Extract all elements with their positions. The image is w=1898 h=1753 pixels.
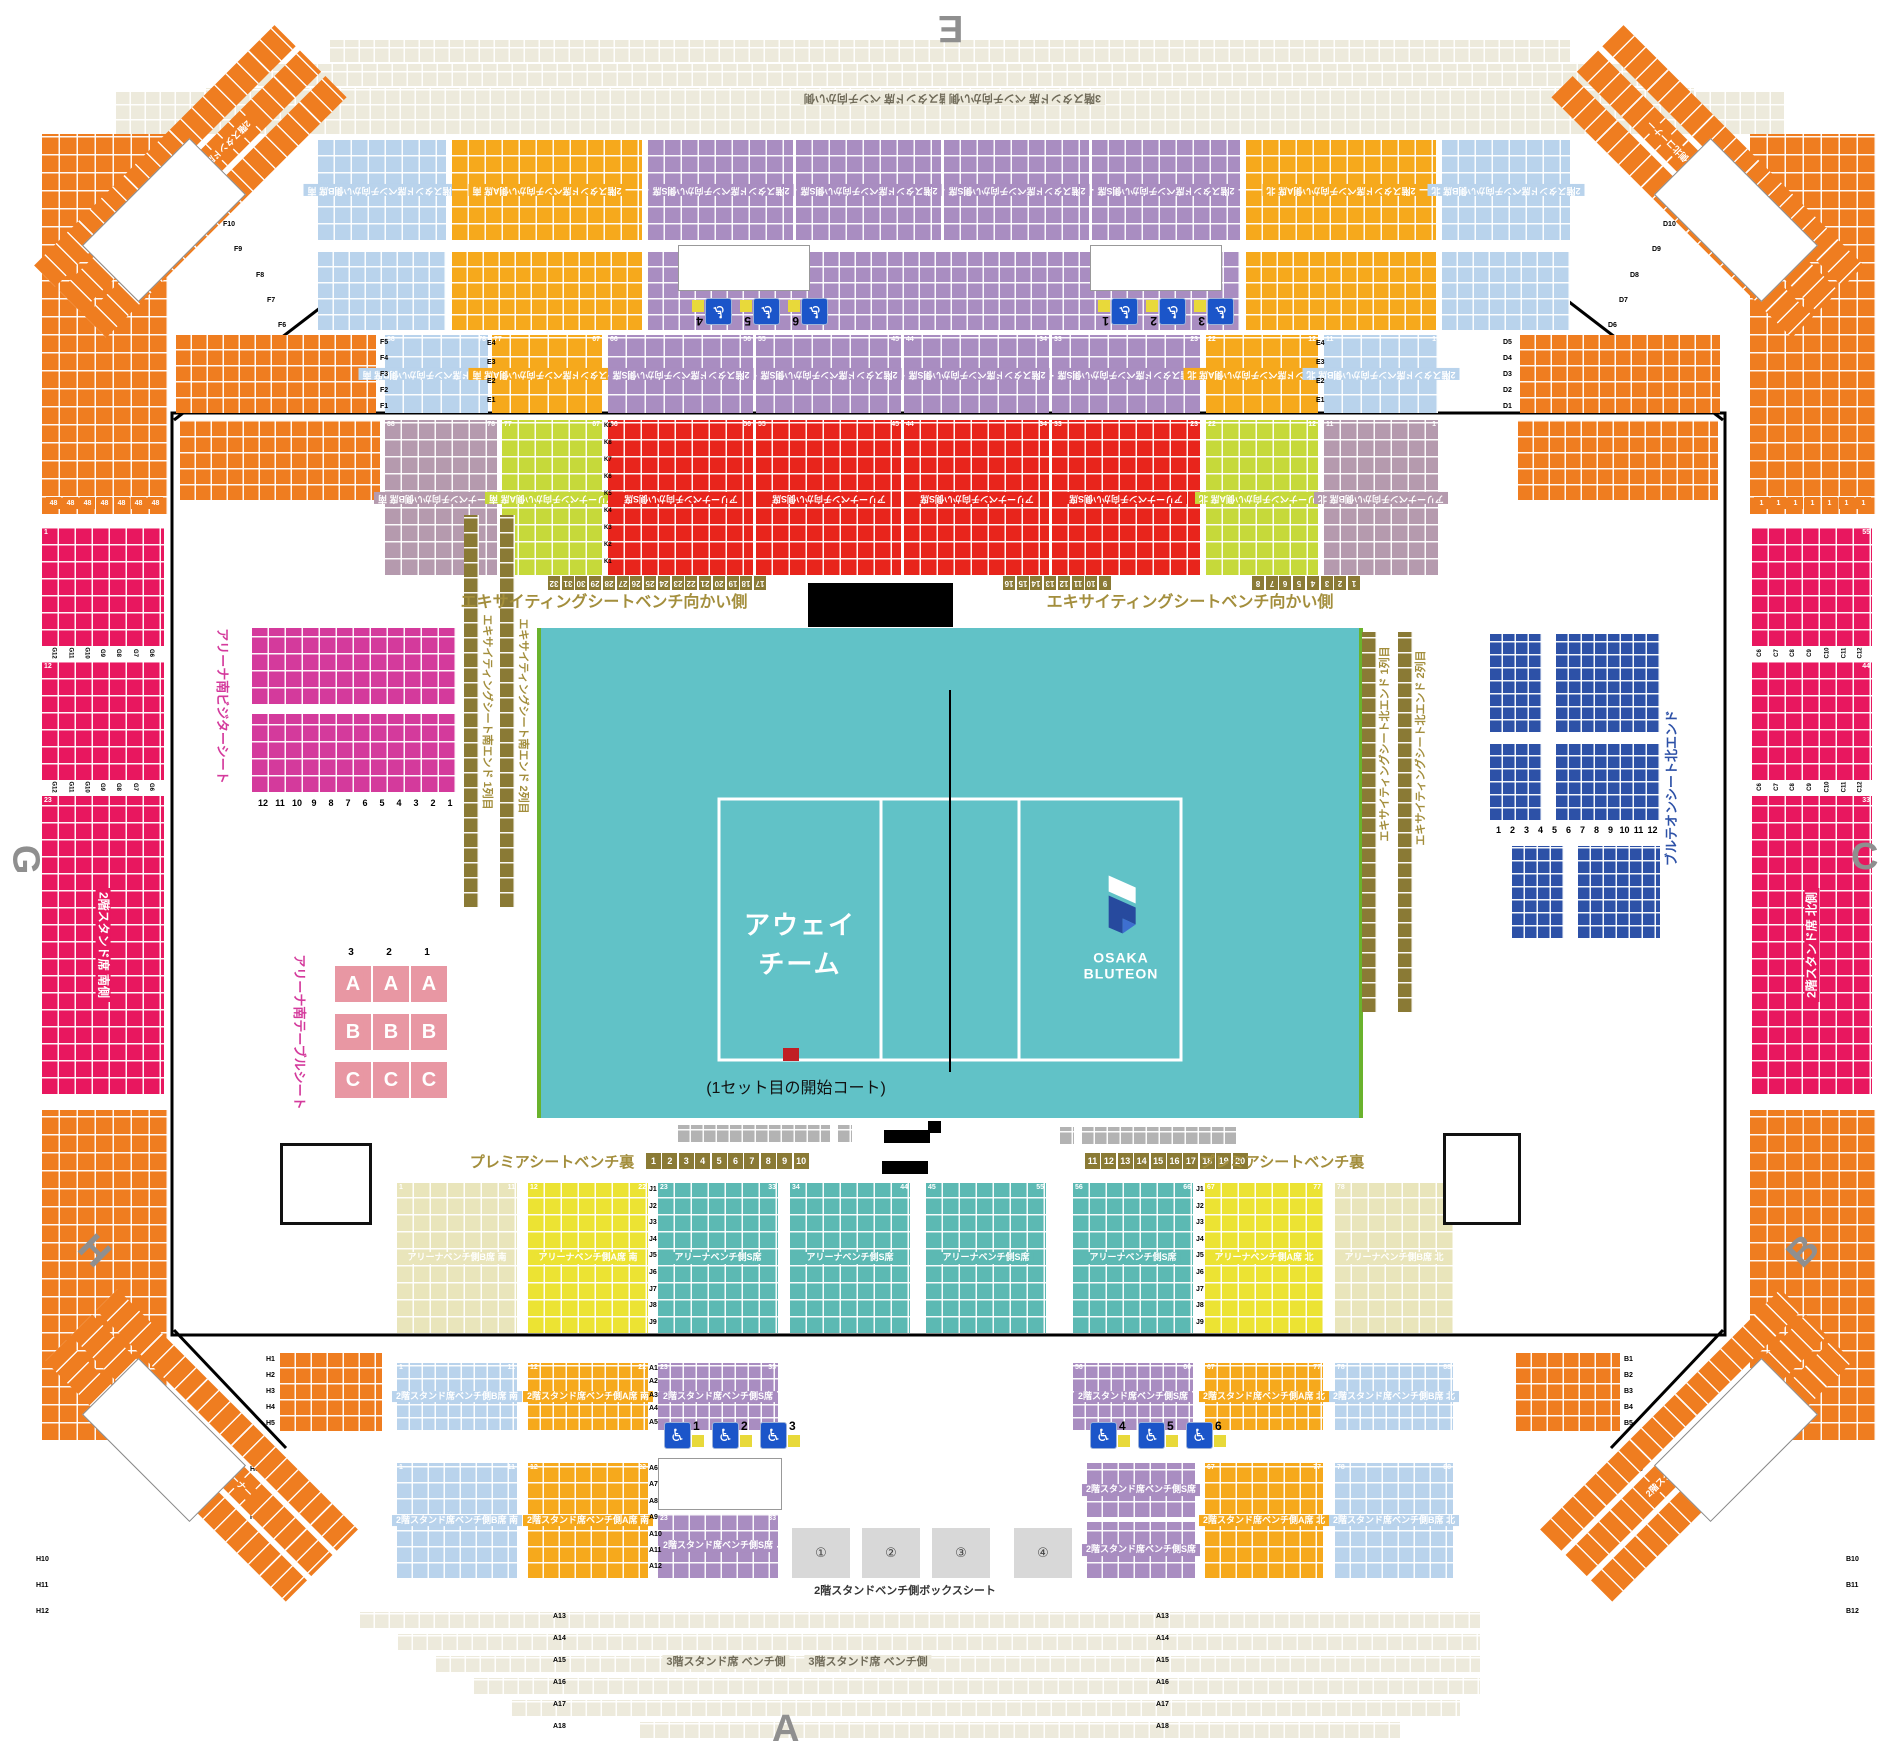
row-label-A13: A13 xyxy=(1156,1613,1169,1620)
wheelchair-seat-1[interactable]: ♿1 xyxy=(664,1422,706,1449)
row-label-G8: G8 xyxy=(115,649,121,657)
bluteon-row-11[interactable]: 11 xyxy=(1632,824,1645,836)
companion-seat[interactable] xyxy=(692,1435,704,1447)
bluteon-row-4[interactable]: 4 xyxy=(1534,824,1547,836)
visitor-row-9[interactable]: 9 xyxy=(307,797,321,809)
section-label-2f-bench-s-upper-right: 2階スタンド席ベンチ側S席 xyxy=(1074,1391,1192,1403)
section-label-arena-bench-s-2: アリーナベンチ側S席 xyxy=(802,1252,897,1264)
row-label-C11: C11 xyxy=(1841,782,1847,793)
section-2f-bench-a-south-lower[interactable]: 2階スタンド席ベンチ側A席 南1222 xyxy=(528,1463,648,1578)
exciting-facing-17[interactable]: 17 xyxy=(754,576,766,590)
section-2f-facing-a-south-lower[interactable]: 2階スタンド席ベンチ向かい側A席 南7767 xyxy=(492,335,602,413)
section-2f-south-side-3[interactable]: 2階スタンド席 南側23 xyxy=(42,796,164,1094)
section-label-2f-facing-s-lower-2: 2階スタンド席ベンチ向かい側S席 xyxy=(756,368,901,380)
seat-number-44: 44 xyxy=(900,1184,908,1191)
label-プレミアシートベンチ: プレミアシートベンチ裏 xyxy=(470,1155,634,1172)
section-arena-bench-a-north[interactable]: アリーナベンチ側A席 北6777 xyxy=(1205,1183,1323,1333)
label-3階スタンド席 ベン: 3階スタンド席 ベンチ側 xyxy=(662,1655,789,1669)
section-arena-facing-a-south[interactable]: アリーナベンチ向かい側A席 南7767 xyxy=(502,420,602,575)
wheelchair-icon: ♿ xyxy=(705,298,732,325)
section-2f-north-side-2[interactable]: 44 xyxy=(1752,662,1872,780)
wheelchair-seat-3[interactable]: ♿3 xyxy=(1192,298,1234,325)
visitor-row-3[interactable]: 3 xyxy=(409,797,423,809)
section-bluteon-north-4[interactable] xyxy=(1556,744,1660,820)
row-label-D6: D6 xyxy=(1608,322,1617,329)
exciting-facing-8[interactable]: 8 xyxy=(1252,576,1264,590)
exciting-facing-3[interactable]: 3 xyxy=(1321,576,1333,590)
table-col-2[interactable]: 2 xyxy=(382,947,396,959)
section-bluteon-north-3[interactable] xyxy=(1490,744,1542,820)
section-table-seat-b3[interactable]: B xyxy=(335,1014,371,1050)
side-south-seat-48[interactable]: 48 xyxy=(148,497,163,509)
exciting-facing-13[interactable]: 13 xyxy=(1044,576,1056,590)
section-3f-south-row6[interactable] xyxy=(640,1722,1400,1738)
row-label-J9: J9 xyxy=(1196,1319,1204,1326)
row-label-K8: K8 xyxy=(604,440,612,446)
row-label-B4: B4 xyxy=(1624,1404,1633,1411)
premium-15[interactable]: 15 xyxy=(1151,1153,1166,1169)
section-bluteon-north-1[interactable] xyxy=(1490,634,1542,732)
row-label-B10: B10 xyxy=(1846,1556,1859,1563)
label-エキサイティングシー: エキサイティングシートベンチ向かい側 xyxy=(461,594,748,612)
exciting-facing-25[interactable]: 25 xyxy=(644,576,656,590)
table-col-3[interactable]: 3 xyxy=(344,947,358,959)
section-3f-north-row2[interactable] xyxy=(258,64,1642,86)
companion-seat[interactable] xyxy=(1146,300,1158,312)
section-bench-row-right[interactable] xyxy=(1082,1127,1236,1144)
side-north-seat-1[interactable]: 1 xyxy=(1822,497,1837,509)
exciting-facing-20[interactable]: 20 xyxy=(713,576,725,590)
row-label-K4: K4 xyxy=(604,508,612,514)
row-label-E4: E4 xyxy=(487,340,496,347)
section-arena-bench-s-2[interactable]: アリーナベンチ側S席3444 xyxy=(790,1183,910,1333)
side-north-seat-1[interactable]: 1 xyxy=(1839,497,1854,509)
seat-number-34: 34 xyxy=(1039,421,1047,428)
seat-number-1: 1 xyxy=(399,1364,403,1371)
section-corner-h-inner-steps[interactable] xyxy=(280,1353,382,1431)
visitor-row-7[interactable]: 7 xyxy=(341,797,355,809)
side-south-seat-48[interactable]: 48 xyxy=(131,497,146,509)
premium-13[interactable]: 13 xyxy=(1118,1153,1133,1169)
row-label-B5: B5 xyxy=(1624,1420,1633,1427)
section-2f-bench-a-north-upper[interactable]: 2階スタンド席ベンチ側A席 北6777 xyxy=(1205,1363,1323,1430)
section-arena-facing-b-south[interactable]: アリーナベンチ向かい側B席 南8878 xyxy=(385,420,497,575)
section-2f-bench-s-upper-left[interactable]: 2階スタンド席ベンチ側S席2333 xyxy=(658,1363,778,1430)
seat-number-88: 88 xyxy=(1443,1364,1451,1371)
side-north-seat-1[interactable]: 1 xyxy=(1771,497,1786,509)
section-label-2f-facing-a-south-upper: 2階スタンド席ベンチ向かい側A席 南 xyxy=(468,184,625,196)
premium-1[interactable]: 1 xyxy=(646,1153,661,1169)
section-arena-bench-b-south[interactable]: アリーナベンチ側B席 南111 xyxy=(397,1183,517,1333)
bluteon-row-9[interactable]: 9 xyxy=(1604,824,1617,836)
set-start-marker xyxy=(783,1048,799,1061)
section-table-seat-a2[interactable]: A xyxy=(373,966,409,1002)
exciting-facing-22[interactable]: 22 xyxy=(685,576,697,590)
section-bluteon-north-2[interactable] xyxy=(1556,634,1660,732)
section-table-seat-b2[interactable]: B xyxy=(373,1014,409,1050)
label-プレミアシートベンチ: プレミアシートベンチ裏 xyxy=(1200,1155,1364,1172)
side-north-seat-1[interactable]: 1 xyxy=(1856,497,1871,509)
exciting-facing-19[interactable]: 19 xyxy=(727,576,739,590)
visitor-row-5[interactable]: 5 xyxy=(375,797,389,809)
exciting-facing-15[interactable]: 15 xyxy=(1017,576,1029,590)
bluteon-row-1[interactable]: 1 xyxy=(1492,824,1505,836)
section-exciting-south-row1[interactable] xyxy=(464,515,479,907)
row-label-G9: G9 xyxy=(99,783,105,791)
section-arena-facing-s-3[interactable]: アリーナベンチ向かい側S席4434 xyxy=(904,420,1049,575)
section-table-seat-a1[interactable]: A xyxy=(411,966,447,1002)
premium-8[interactable]: 8 xyxy=(761,1153,776,1169)
gate-letter-G: G xyxy=(3,845,46,875)
wheelchair-seat-4[interactable]: ♿4 xyxy=(1090,1422,1132,1449)
section-arena-bench-s-4[interactable]: アリーナベンチ側S席5666 xyxy=(1073,1183,1193,1333)
section-corner-d-inner-rows[interactable] xyxy=(1520,335,1720,413)
exciting-facing-2[interactable]: 2 xyxy=(1334,576,1346,590)
companion-seat[interactable] xyxy=(1118,1435,1130,1447)
side-south-seat-48[interactable]: 48 xyxy=(97,497,112,509)
section-2f-bench-b-north-lower[interactable]: 2階スタンド席ベンチ側B席 北7888 xyxy=(1335,1463,1453,1578)
companion-seat[interactable] xyxy=(1098,300,1110,312)
section-3f-south-row4[interactable] xyxy=(474,1678,1480,1694)
exciting-facing-4[interactable]: 4 xyxy=(1307,576,1319,590)
section-2f-facing-a-north-lower[interactable]: 2階スタンド席ベンチ向かい側A席 北2212 xyxy=(1206,335,1318,413)
section-2f-south-side-2[interactable]: 12 xyxy=(42,662,164,780)
section-arena-south-visitor-1[interactable] xyxy=(252,628,456,704)
section-label-arena-facing-a-north: アリーナベンチ向かい側A席 北 xyxy=(1195,492,1329,504)
section-corner-g-inner-steps[interactable] xyxy=(180,420,380,500)
premium-6[interactable]: 6 xyxy=(728,1153,743,1169)
seat-number-34: 34 xyxy=(792,1184,800,1191)
wheelchair-seat-2[interactable]: ♿2 xyxy=(1144,298,1186,325)
section-arena-bench-b-north[interactable]: アリーナベンチ側B席 北7888 xyxy=(1335,1183,1453,1333)
team-logo: OSAKA BLUTEON xyxy=(1084,875,1159,982)
box-seat-①[interactable]: ① xyxy=(792,1528,850,1578)
section-2f-bench-b-south-upper[interactable]: 2階スタンド席ベンチ側B席 南111 xyxy=(397,1363,517,1430)
section-2f-bench-a-south-upper[interactable]: 2階スタンド席ベンチ側A席 南1222 xyxy=(528,1363,648,1430)
exciting-facing-27[interactable]: 27 xyxy=(617,576,629,590)
premium-4[interactable]: 4 xyxy=(695,1153,710,1169)
section-2f-facing-s-upper-4[interactable]: 2階スタンド席ベンチ向かい側S席 xyxy=(1092,140,1240,240)
bluteon-row-6[interactable]: 6 xyxy=(1562,824,1575,836)
visitor-row-6[interactable]: 6 xyxy=(358,797,372,809)
section-2f-facing-s-upper-3[interactable]: 2階スタンド席ベンチ向かい側S席 xyxy=(944,140,1089,240)
bluteon-row-7[interactable]: 7 xyxy=(1576,824,1589,836)
row-label-A14: A14 xyxy=(1156,1635,1169,1642)
seat-number-33: 33 xyxy=(1054,421,1062,428)
section-exciting-north-row1[interactable] xyxy=(1362,632,1377,1012)
visitor-row-12[interactable]: 12 xyxy=(256,797,270,809)
visitor-row-8[interactable]: 8 xyxy=(324,797,338,809)
premium-2[interactable]: 2 xyxy=(662,1153,677,1169)
wheelchair-seat-5[interactable]: ♿5 xyxy=(738,298,780,325)
wheelchair-seat-number: 6 xyxy=(1215,1419,1222,1433)
section-bluteon-north-5[interactable] xyxy=(1512,846,1564,938)
section-arena-facing-s-2[interactable]: アリーナベンチ向かい側S席5545 xyxy=(756,420,901,575)
section-bench-row-left[interactable] xyxy=(678,1125,830,1142)
section-label-2f-bench-s-lower-right-b: 2階スタンド席ベンチ側S席 xyxy=(1082,1544,1200,1556)
wheelchair-seat-group[interactable]: ♿3♿2♿1 xyxy=(1096,298,1234,325)
row-label-E4: E4 xyxy=(1316,340,1325,347)
premium-7[interactable]: 7 xyxy=(744,1153,759,1169)
visitor-row-2[interactable]: 2 xyxy=(426,797,440,809)
wheelchair-seat-number: 3 xyxy=(1198,314,1205,328)
section-label-2f-facing-s-lower-3: 2階スタンド席ベンチ向かい側S席 xyxy=(904,368,1049,380)
premium-9[interactable]: 9 xyxy=(777,1153,792,1169)
premium-16[interactable]: 16 xyxy=(1167,1153,1182,1169)
wheelchair-seat-5[interactable]: ♿5 xyxy=(1138,1422,1180,1449)
wheelchair-icon: ♿ xyxy=(1090,1422,1117,1449)
wheelchair-seat-6[interactable]: ♿6 xyxy=(786,298,828,325)
side-north-seat-1[interactable]: 1 xyxy=(1788,497,1803,509)
visitor-row-1[interactable]: 1 xyxy=(443,797,457,809)
premium-11[interactable]: 11 xyxy=(1085,1153,1100,1169)
section-2f-facing-b-north-lower[interactable]: 2階スタンド席ベンチ向かい側B席 北111 xyxy=(1324,335,1438,413)
exciting-facing-23[interactable]: 23 xyxy=(672,576,684,590)
row-label-A10: A10 xyxy=(649,1531,662,1538)
section-2f-south-side-1[interactable]: 1 xyxy=(42,528,164,646)
section-2f-north-side-1[interactable]: 55 xyxy=(1752,528,1872,646)
section-2f-facing-a-north-mid[interactable] xyxy=(1246,252,1436,330)
section-corner-b-inner-steps[interactable] xyxy=(1516,1353,1620,1431)
section-2f-facing-a-north-upper[interactable]: 2階スタンド席ベンチ向かい側A席 北 xyxy=(1246,140,1436,240)
wheelchair-seat-group[interactable]: ♿1♿2♿3 xyxy=(664,1422,802,1449)
seat-number-1: 1 xyxy=(1432,421,1436,428)
section-table-seat-b1[interactable]: B xyxy=(411,1014,447,1050)
box-seat-②[interactable]: ② xyxy=(862,1528,920,1578)
seat-number-78: 78 xyxy=(478,336,486,343)
section-3f-south-row5[interactable] xyxy=(512,1700,1460,1716)
seat-number-33: 33 xyxy=(1862,797,1870,804)
exciting-facing-5[interactable]: 5 xyxy=(1293,576,1305,590)
seat-number-45: 45 xyxy=(928,1184,936,1191)
section-2f-facing-b-north-mid[interactable] xyxy=(1442,252,1570,330)
row-label-B2: B2 xyxy=(1624,1372,1633,1379)
row-label-C8: C8 xyxy=(1790,783,1796,791)
away-team-label: アウェイ チーム xyxy=(744,906,856,984)
section-arena-facing-a-north[interactable]: アリーナベンチ向かい側A席 北2212 xyxy=(1206,420,1318,575)
exciting-facing-18[interactable]: 18 xyxy=(740,576,752,590)
section-3f-south-row3[interactable] xyxy=(436,1656,1480,1672)
section-label-arena-facing-a-south: アリーナベンチ向かい側A席 南 xyxy=(485,492,619,504)
section-table-seat-c2[interactable]: C xyxy=(373,1062,409,1098)
wheelchair-seat-number: 6 xyxy=(792,314,799,328)
wheelchair-icon: ♿ xyxy=(1111,298,1138,325)
section-arena-bench-a-south[interactable]: アリーナベンチ側A席 南1222 xyxy=(528,1183,648,1333)
row-label-C6: C6 xyxy=(1757,783,1763,791)
side-south-seat-48[interactable]: 48 xyxy=(80,497,95,509)
section-table-seat-a3[interactable]: A xyxy=(335,966,371,1002)
section-2f-facing-b-south-upper[interactable]: 2階スタンド席ベンチ向かい側B席 南 xyxy=(318,140,446,240)
section-2f-bench-b-north-upper[interactable]: 2階スタンド席ベンチ側B席 北7888 xyxy=(1335,1363,1453,1430)
exciting-facing-9[interactable]: 9 xyxy=(1099,576,1111,590)
box-seat-④[interactable]: ④ xyxy=(1014,1528,1072,1578)
section-arena-facing-s-4[interactable]: アリーナベンチ向かい側S席3323 xyxy=(1052,420,1200,575)
wheelchair-seat-3[interactable]: ♿3 xyxy=(760,1422,802,1449)
companion-seat[interactable] xyxy=(1194,300,1206,312)
row-label-A11: A11 xyxy=(649,1547,661,1554)
team-logo-text2: BLUTEON xyxy=(1084,966,1159,982)
seat-number-22: 22 xyxy=(1208,336,1216,343)
exciting-facing-24[interactable]: 24 xyxy=(658,576,670,590)
wheelchair-seat-group[interactable]: ♿6♿5♿4 xyxy=(690,298,828,325)
section-corner-d-inner-steps[interactable] xyxy=(1518,420,1718,500)
bluteon-row-2[interactable]: 2 xyxy=(1506,824,1519,836)
exciting-facing-21[interactable]: 21 xyxy=(699,576,711,590)
wheelchair-seat-number: 4 xyxy=(696,314,703,328)
side-north-seat-1[interactable]: 1 xyxy=(1805,497,1820,509)
row-label-K1: K1 xyxy=(604,559,612,565)
exciting-facing-1[interactable]: 1 xyxy=(1348,576,1360,590)
seat-number-45: 45 xyxy=(891,421,899,428)
companion-seat[interactable] xyxy=(1166,1435,1178,1447)
side-south-seat-48[interactable]: 48 xyxy=(114,497,129,509)
wheelchair-seat-group[interactable]: ♿4♿5♿6 xyxy=(1090,1422,1228,1449)
section-label-2f-facing-s-lower-1: 2階スタンド席ベンチ向かい側S席 xyxy=(608,368,753,380)
section-label-table-seat-a1: A xyxy=(418,972,440,996)
seat-number-77: 77 xyxy=(1313,1184,1321,1191)
section-exciting-south-row2[interactable] xyxy=(500,515,515,907)
section-arena-south-visitor-2[interactable] xyxy=(252,714,456,792)
box-seats-top-right xyxy=(1090,245,1222,291)
section-arena-facing-b-north[interactable]: アリーナベンチ向かい側B席 北111 xyxy=(1324,420,1438,575)
section-2f-bench-a-north-lower[interactable]: 2階スタンド席ベンチ側A席 北6777 xyxy=(1205,1463,1323,1578)
box-seat-③[interactable]: ③ xyxy=(932,1528,990,1578)
section-2f-bench-s-lower-left[interactable]: 2階スタンド席ベンチ側S席2333 xyxy=(658,1514,778,1578)
row-label-J7: J7 xyxy=(649,1286,657,1293)
section-2f-bench-b-south-lower[interactable]: 2階スタンド席ベンチ側B席 南111 xyxy=(397,1463,517,1578)
side-south-seat-48[interactable]: 48 xyxy=(63,497,78,509)
row-label-G12: G12 xyxy=(51,781,57,792)
exciting-facing-14[interactable]: 14 xyxy=(1030,576,1042,590)
bluteon-row-3[interactable]: 3 xyxy=(1520,824,1533,836)
section-3f-south-row1[interactable] xyxy=(360,1612,1480,1628)
section-2f-facing-s-lower-3[interactable]: 2階スタンド席ベンチ向かい側S席4434 xyxy=(904,335,1049,413)
exciting-facing-29[interactable]: 29 xyxy=(589,576,601,590)
premium-10[interactable]: 10 xyxy=(794,1153,809,1169)
exciting-facing-26[interactable]: 26 xyxy=(630,576,642,590)
section-2f-facing-b-south-mid[interactable] xyxy=(318,252,446,330)
label-ブルテオンシート北エ: ブルテオンシート北エンド xyxy=(1665,710,1679,866)
wheelchair-seat-6[interactable]: ♿6 xyxy=(1186,1422,1228,1449)
bluteon-row-10[interactable]: 10 xyxy=(1618,824,1631,836)
section-2f-facing-s-lower-1[interactable]: 2階スタンド席ベンチ向かい側S席6656 xyxy=(608,335,753,413)
wheelchair-seat-number: 2 xyxy=(1150,314,1157,328)
section-2f-facing-b-north-upper[interactable]: 2階スタンド席ベンチ向かい側B席 北 xyxy=(1442,140,1570,240)
row-label-B12: B12 xyxy=(1846,1608,1859,1615)
row-label-D4: D4 xyxy=(1503,355,1512,362)
table-col-1[interactable]: 1 xyxy=(420,947,434,959)
row-label-G11: G11 xyxy=(67,781,73,792)
row-label-J1: J1 xyxy=(1196,1186,1204,1193)
premium-12[interactable]: 12 xyxy=(1101,1153,1116,1169)
section-label-2f-facing-s-lower-4: 2階スタンド席ベンチ向かい側S席 xyxy=(1053,368,1198,380)
premium-5[interactable]: 5 xyxy=(712,1153,727,1169)
row-label-D7: D7 xyxy=(1619,297,1628,304)
section-arena-facing-s-1[interactable]: アリーナベンチ向かい側S席6656 xyxy=(608,420,753,575)
wheelchair-seat-2[interactable]: ♿2 xyxy=(712,1422,754,1449)
row-label-J6: J6 xyxy=(649,1269,657,1276)
section-2f-facing-a-south-upper[interactable]: 2階スタンド席ベンチ向かい側A席 南 xyxy=(452,140,642,240)
wheelchair-icon: ♿ xyxy=(664,1422,691,1449)
section-bluteon-north-6[interactable] xyxy=(1578,846,1660,938)
section-2f-facing-s-lower-4[interactable]: 2階スタンド席ベンチ向かい側S席3323 xyxy=(1052,335,1200,413)
companion-seat[interactable] xyxy=(740,300,752,312)
section-2f-facing-s-lower-2[interactable]: 2階スタンド席ベンチ向かい側S席5545 xyxy=(756,335,901,413)
section-label-2f-bench-s-upper-left: 2階スタンド席ベンチ側S席 xyxy=(659,1391,777,1403)
side-south-seat-48[interactable]: 48 xyxy=(46,497,61,509)
row-label-F4: F4 xyxy=(380,355,388,362)
bluteon-row-8[interactable]: 8 xyxy=(1590,824,1603,836)
companion-seat[interactable] xyxy=(1214,1435,1226,1447)
exciting-facing-7[interactable]: 7 xyxy=(1266,576,1278,590)
exciting-facing-32[interactable]: 32 xyxy=(548,576,560,590)
side-north-seat-1[interactable]: 1 xyxy=(1754,497,1769,509)
seat-number-33: 33 xyxy=(768,1184,776,1191)
premium-3[interactable]: 3 xyxy=(679,1153,694,1169)
companion-seat[interactable] xyxy=(692,300,704,312)
section-2f-bench-s-upper-right[interactable]: 2階スタンド席ベンチ側S席5666 xyxy=(1073,1363,1193,1430)
label-3階スタンド席 ベン: 3階スタンド席 ベンチ側 xyxy=(804,1655,931,1669)
section-exciting-north-row2[interactable] xyxy=(1398,632,1413,1012)
exciting-facing-6[interactable]: 6 xyxy=(1279,576,1291,590)
section-arena-bench-s-1[interactable]: アリーナベンチ側S席2333 xyxy=(658,1183,778,1333)
row-label-H12: H12 xyxy=(36,1608,49,1615)
wheelchair-seat-number: 3 xyxy=(789,1419,796,1433)
box-seats-top-left xyxy=(678,245,810,291)
visitor-row-10[interactable]: 10 xyxy=(290,797,304,809)
seat-number-56: 56 xyxy=(1075,1364,1083,1371)
section-2f-bench-s-lower-right-b[interactable]: 2階スタンド席ベンチ側S席 xyxy=(1087,1522,1195,1578)
section-corner-f-inner-rows[interactable] xyxy=(176,335,376,413)
exciting-facing-16[interactable]: 16 xyxy=(1003,576,1015,590)
exciting-facing-28[interactable]: 28 xyxy=(603,576,615,590)
exciting-facing-12[interactable]: 12 xyxy=(1058,576,1070,590)
exciting-facing-10[interactable]: 10 xyxy=(1085,576,1097,590)
row-label-B11: B11 xyxy=(1846,1582,1858,1589)
row-label-H4: H4 xyxy=(266,1404,275,1411)
section-2f-facing-a-south-mid[interactable] xyxy=(452,252,642,330)
visitor-row-4[interactable]: 4 xyxy=(392,797,406,809)
row-label-B3: B3 xyxy=(1624,1388,1633,1395)
section-bench-row-right-single[interactable] xyxy=(1060,1127,1074,1144)
companion-seat[interactable] xyxy=(788,300,800,312)
row-label-F2: F2 xyxy=(380,387,388,394)
bluteon-row-12[interactable]: 12 xyxy=(1646,824,1659,836)
section-2f-bench-s-lower-right-a[interactable]: 2階スタンド席ベンチ側S席 xyxy=(1087,1463,1195,1517)
premium-14[interactable]: 14 xyxy=(1134,1153,1149,1169)
section-arena-bench-s-3[interactable]: アリーナベンチ側S席4555 xyxy=(926,1183,1046,1333)
bluteon-row-5[interactable]: 5 xyxy=(1548,824,1561,836)
wheelchair-seat-4[interactable]: ♿4 xyxy=(690,298,732,325)
section-bench-row-left-single[interactable] xyxy=(838,1125,852,1142)
companion-seat[interactable] xyxy=(788,1435,800,1447)
exciting-facing-11[interactable]: 11 xyxy=(1072,576,1084,590)
section-2f-facing-s-upper-2[interactable]: 2階スタンド席ベンチ向かい側S席 xyxy=(796,140,941,240)
section-table-seat-c1[interactable]: C xyxy=(411,1062,447,1098)
companion-seat[interactable] xyxy=(740,1435,752,1447)
premium-17[interactable]: 17 xyxy=(1183,1153,1198,1169)
seat-number-11: 11 xyxy=(508,1464,515,1471)
section-table-seat-c3[interactable]: C xyxy=(335,1062,371,1098)
exciting-facing-31[interactable]: 31 xyxy=(562,576,574,590)
section-label-arena-facing-s-4: アリーナベンチ向かい側S席 xyxy=(1065,492,1187,504)
wheelchair-seat-1[interactable]: ♿1 xyxy=(1096,298,1138,325)
exciting-facing-30[interactable]: 30 xyxy=(575,576,587,590)
seat-number-12: 12 xyxy=(1308,421,1316,428)
seat-number-88: 88 xyxy=(387,421,395,428)
section-2f-facing-s-upper-1[interactable]: 2階スタンド席ベンチ向かい側S席 xyxy=(648,140,793,240)
visitor-row-11[interactable]: 11 xyxy=(273,797,287,809)
